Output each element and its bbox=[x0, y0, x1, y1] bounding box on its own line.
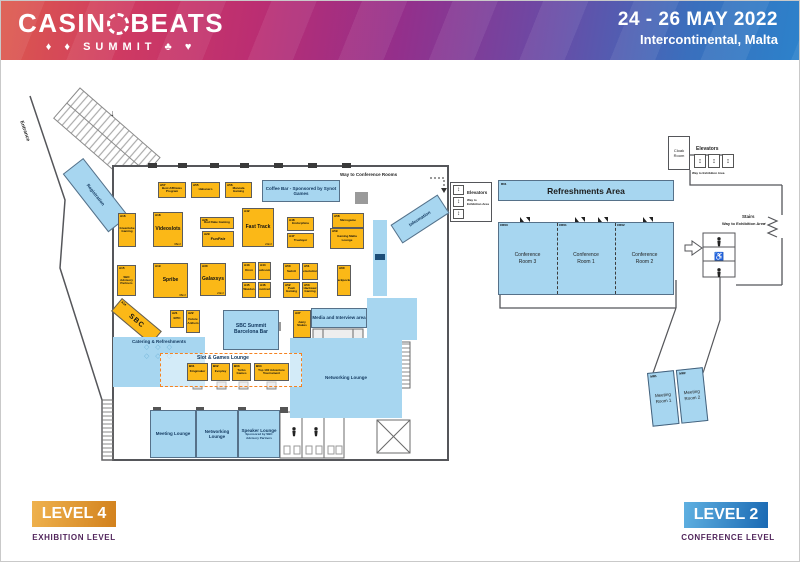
level2-badge-text: LEVEL 2 bbox=[694, 506, 759, 524]
booth-lucksome: A44 Lucksome bbox=[258, 262, 271, 280]
booth-fast-track: A42 Fast Track 24m² bbox=[242, 208, 274, 247]
booth-juicy-stakes: A37 Juicy Stakes bbox=[293, 310, 311, 338]
elevator-icon: ↕ bbox=[722, 154, 734, 168]
networking-lounge-arm bbox=[367, 298, 417, 340]
refreshments-code: R01 bbox=[501, 182, 507, 186]
coffee-bar-label: Coffee Bar - Sponsored by Synot Games bbox=[263, 186, 339, 196]
wheelchair-icon: ♿ bbox=[714, 251, 724, 261]
way-to-conference-label: Way to Conference Rooms bbox=[340, 172, 397, 177]
networking-lounge-area: Networking Lounge bbox=[290, 338, 402, 418]
booth-swintt: A50 Swintt bbox=[283, 263, 300, 280]
booth-gaming-malta-lounge: A59 Gaming Malta Lounge bbox=[330, 228, 364, 249]
booth-sbc-advisory-partners: A15 SBC Advisory Partners bbox=[117, 265, 136, 296]
elevator-icon: ↕ bbox=[453, 197, 464, 207]
logo-summit-line: ♦ ♦ SUMMIT ♣ ♥ bbox=[18, 41, 224, 53]
right-arrow-icon: → bbox=[762, 220, 767, 226]
booth-greentube-gaming: A16 Greentube Gaming bbox=[118, 213, 136, 247]
media-interview-area: Media and Interview area bbox=[311, 308, 367, 328]
booth-epic: A21 EPIC bbox=[170, 310, 184, 328]
booth-turbo-games: B03 Turbo Games bbox=[232, 363, 251, 381]
networking-lounge-label: Networking Lounge bbox=[325, 375, 367, 380]
booth-kiron: A43 Kiron bbox=[242, 262, 256, 280]
sbc-summit-barcelona-bar: SBC Summit Barcelona Bar bbox=[223, 310, 279, 350]
event-venue: Intercontinental, Malta bbox=[618, 32, 778, 47]
meeting-lounge-label: Meeting Lounge bbox=[156, 431, 191, 436]
refreshments-label: Refreshments Area bbox=[547, 186, 625, 196]
networking-lounge-room: Networking Lounge bbox=[196, 410, 238, 458]
elevators-left-label: Elevators bbox=[467, 190, 487, 195]
meeting-room-1: MR1 Meeting Room 1 bbox=[647, 370, 679, 427]
level4-floorplan: Entrance ↓ Registration Information Way … bbox=[10, 70, 455, 482]
elevator-icon: ↕ bbox=[453, 185, 464, 195]
level4-badge-text: LEVEL 4 bbox=[42, 505, 107, 523]
booth-habanero: A55 Habanero bbox=[191, 182, 220, 198]
booth-endorphina: A48 Endorphina bbox=[287, 217, 314, 231]
way-exhibit-right-label: Way to Exhibition Area bbox=[722, 221, 765, 226]
level2-badge: LEVEL 2 bbox=[684, 502, 768, 528]
booth-videoslots: A18 Videoslots 36m² bbox=[153, 212, 183, 247]
conference-room-1: CR01 Conference Room 1 bbox=[557, 222, 615, 295]
booth-evoplay: B02 Evoplay bbox=[211, 363, 230, 381]
header-banner: CASINBEATS ♦ ♦ SUMMIT ♣ ♥ 24 - 26 MAY 20… bbox=[0, 0, 800, 60]
booth-microgame: A58 Microgame bbox=[332, 213, 364, 228]
booth-hacksaw-gaming: A53 Hacksaw Gaming bbox=[302, 282, 318, 298]
booth-jackpocket: A60 Jackpocket bbox=[337, 265, 351, 296]
booth-galaxsys: A30 Galaxsys 24m² bbox=[200, 263, 226, 296]
booth-betsolutions: A51 Betsolutions bbox=[302, 263, 318, 280]
refreshments-area: R01 Refreshments Area bbox=[498, 180, 674, 201]
event-dates: 24 - 26 MAY 2022 bbox=[618, 9, 778, 31]
level2-floorplan: ♿ Cloak Room Elevators ↕ ↕ ↕ Way to Exhi… bbox=[450, 130, 795, 475]
sbc-bar-label: SBC Summit Barcelona Bar bbox=[224, 324, 278, 336]
networking-lounge-room-label: Networking Lounge bbox=[197, 429, 237, 439]
speaker-lounge-sublabel: Sponsored by SBC Advisory Partners bbox=[239, 433, 279, 440]
card-suits-right-icon: ♣ ♥ bbox=[165, 41, 197, 53]
card-suits-left-icon: ♦ ♦ bbox=[46, 41, 75, 53]
logo-text-pre: CASIN bbox=[18, 8, 106, 39]
speaker-lounge-room: Speaker Lounge Sponsored by SBC Advisory… bbox=[238, 410, 280, 458]
booth-red-rake-gaming: A28 Red Rake Gaming bbox=[200, 217, 234, 229]
down-arrow-icon: ↓ bbox=[110, 108, 115, 118]
level2-badge-sub: CONFERENCE LEVEL bbox=[678, 533, 778, 542]
elevator-icon: ↕ bbox=[708, 154, 720, 168]
booth-push-gaming: A52 Push Gaming bbox=[283, 282, 300, 298]
elevators-top-label: Elevators bbox=[696, 146, 719, 152]
booth-spribe: A19 Spribe 36m² bbox=[153, 263, 188, 298]
booth-comtrade: A46 Comtrade bbox=[258, 282, 271, 298]
casino-chip-icon bbox=[107, 13, 129, 35]
booth-funfair: A29 FunFair bbox=[202, 231, 234, 247]
information-label: Information bbox=[408, 210, 432, 228]
booth-best-affiliates-program: A57 Best Affiliates Program bbox=[158, 182, 186, 198]
way-exhibit-left-label: Way to Exhibition Area bbox=[467, 198, 489, 206]
booth-wazdan: A45 Wazdan bbox=[242, 282, 256, 298]
booth-kingmaker: B01 Kingmaker bbox=[187, 363, 208, 381]
corridor-marker bbox=[375, 254, 385, 260]
elevators-left: ↕ ↕ ↕ bbox=[453, 185, 464, 219]
booth-mancala-gaming: A56 Mancala Gaming bbox=[225, 182, 252, 198]
logo-wordmark: CASINBEATS bbox=[18, 8, 224, 39]
casinobeats-logo: CASINBEATS ♦ ♦ SUMMIT ♣ ♥ bbox=[18, 8, 224, 53]
meeting-lounge-room: Meeting Lounge bbox=[150, 410, 196, 458]
logo-summit-text: SUMMIT bbox=[83, 41, 156, 53]
cloak-room: Cloak Room bbox=[668, 136, 690, 170]
catering-tables-icons: ◇ ◇ ◇ bbox=[144, 344, 174, 352]
booth-truelayer: A47 Truelayer bbox=[287, 233, 314, 248]
registration-label: Registration bbox=[86, 183, 106, 207]
cloak-room-label: Cloak Room bbox=[669, 148, 689, 158]
slot-games-lounge-label: Slot & Games Lounge bbox=[197, 355, 249, 361]
level2-restrooms: ♿ bbox=[703, 233, 735, 277]
conference-room-2: CR02 Conference Room 2 bbox=[615, 222, 674, 295]
event-info: 24 - 26 MAY 2022 Intercontinental, Malta bbox=[618, 9, 778, 47]
booth-top100-adventure: B04 Top 100 Adventure Tournament bbox=[254, 363, 289, 381]
level4-restrooms bbox=[280, 412, 344, 458]
media-area-label: Media and Interview area bbox=[312, 315, 365, 320]
stairs-label: Stairs bbox=[742, 214, 755, 219]
level4-badge-sub: EXHIBITION LEVEL bbox=[24, 533, 124, 542]
coffee-bar-area: Coffee Bar - Sponsored by Synot Games bbox=[262, 180, 340, 202]
meeting-room-2: MR2 Meeting Room 2 bbox=[676, 367, 708, 424]
conference-room-3: CR03 Conference Room 3 bbox=[498, 222, 557, 295]
way-exhibit-top-label: Way to Exhibition Area bbox=[692, 171, 724, 175]
elevators-top: ↕ ↕ ↕ bbox=[694, 154, 734, 168]
level4-badge: LEVEL 4 bbox=[32, 501, 116, 527]
elevator-icon: ↕ bbox=[453, 209, 464, 219]
booth-future-anthem: A22 Future Anthem bbox=[186, 310, 200, 333]
elevator-icon: ↕ bbox=[694, 154, 706, 168]
logo-text-post: BEATS bbox=[130, 8, 224, 39]
